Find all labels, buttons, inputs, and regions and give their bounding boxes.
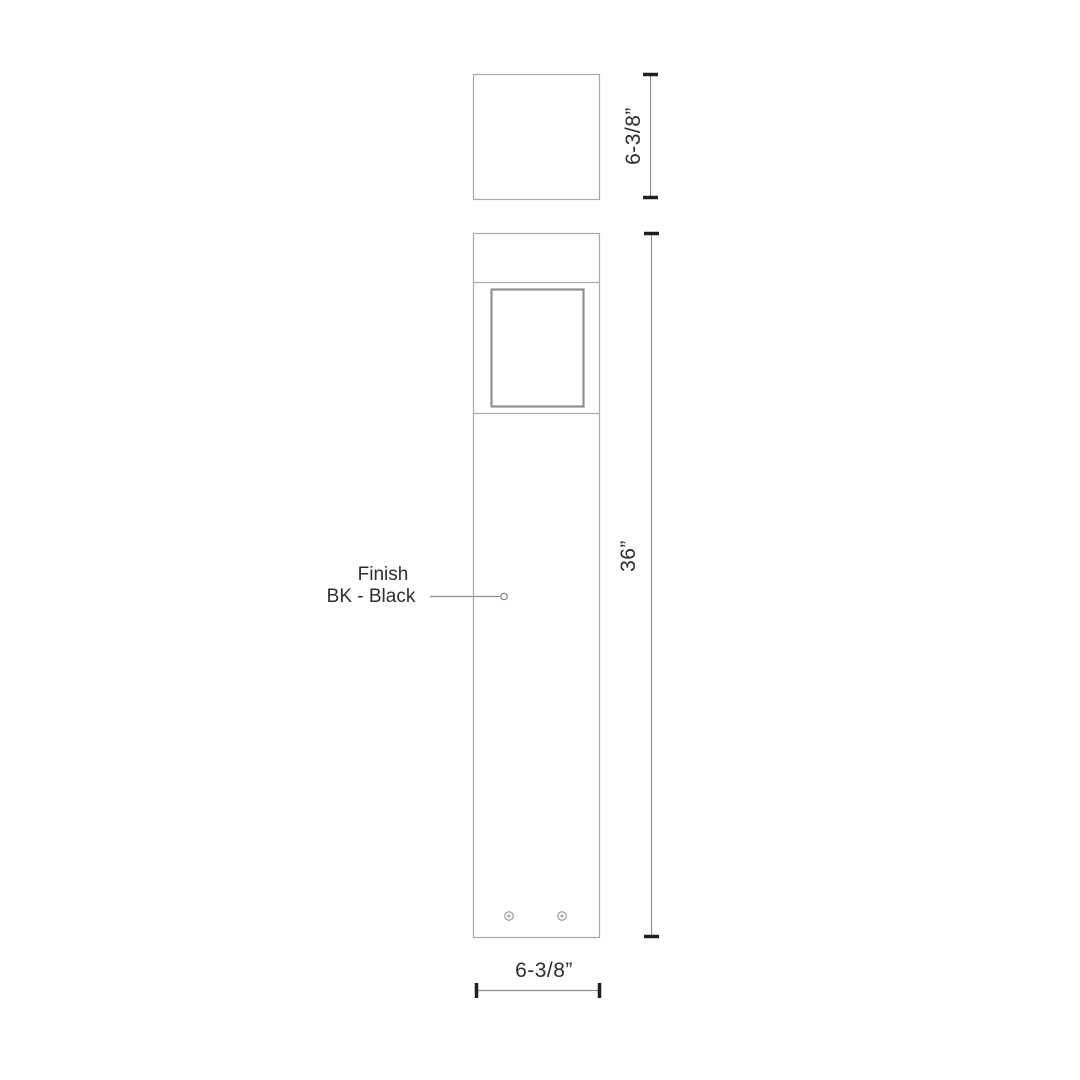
finish-leader	[430, 593, 507, 599]
base-dimension-label: 6-3/8”	[515, 959, 573, 983]
top-view	[474, 75, 600, 200]
front-view	[474, 234, 600, 938]
base-screw-left	[505, 912, 513, 920]
height-dimension-label: 36”	[617, 540, 641, 572]
finish-label-line2: BK - Black	[327, 586, 416, 608]
dimension-drawing: 6-3/8” 36” 6-3/8” Finish BK - Black	[0, 0, 1080, 1080]
finish-leader-terminator-circle	[501, 593, 507, 599]
height-dimension	[644, 234, 659, 937]
head-dimension-label: 6-3/8”	[622, 107, 646, 165]
lens-window	[492, 290, 584, 407]
base-dimension	[477, 983, 600, 998]
drawing-linework	[0, 0, 1080, 1080]
top-view-square	[474, 75, 600, 200]
finish-label-line1: Finish	[358, 564, 409, 586]
base-screw-right	[558, 912, 566, 920]
